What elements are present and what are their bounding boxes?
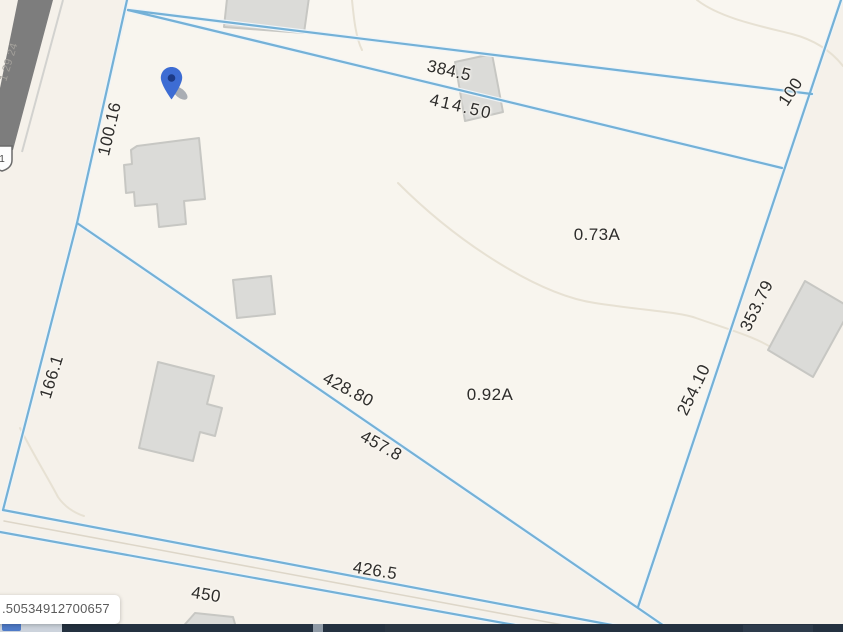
route-shield: 1 xyxy=(0,146,12,171)
building-shed xyxy=(233,276,275,318)
building-right-edge xyxy=(768,281,843,377)
map-layers: 1 xyxy=(0,0,843,632)
bottom-dark-strip xyxy=(0,620,843,632)
route-shield-number: 1 xyxy=(0,154,5,165)
bottom-bar-segment xyxy=(385,624,500,632)
terrain-path-bottomleft xyxy=(20,428,84,516)
building-house-lower xyxy=(139,362,222,461)
area-label-south-parcel: 0.92A xyxy=(467,385,513,405)
pin-icon-dot xyxy=(168,74,176,82)
bottom-bar-divider xyxy=(313,624,323,632)
area-label-north-parcel: 0.73A xyxy=(574,225,620,245)
parcel-map-canvas[interactable]: 1 384.5 414.50 100.16 166.1 100 353.79 2… xyxy=(0,0,843,632)
bottom-bar-segment-right xyxy=(743,625,813,632)
parcel-id-tooltip: .50534912700657 xyxy=(0,595,120,624)
parcel-id-text: .50534912700657 xyxy=(2,601,110,616)
